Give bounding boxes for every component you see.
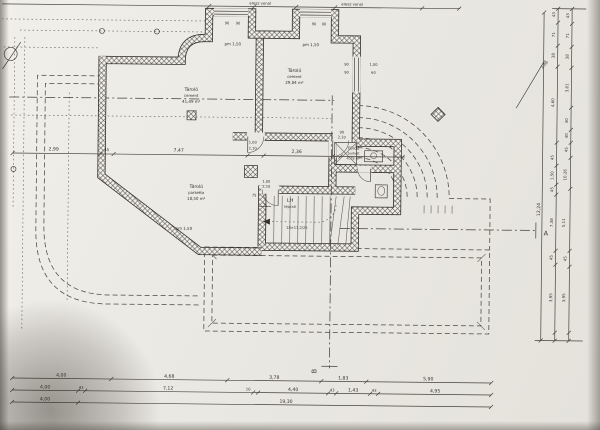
wall-pillar [186,111,258,178]
dim-b2-7: 1,43 [348,388,358,394]
dim-b2-2: 43 [79,385,84,390]
room1-area: 41,49 m² [182,99,201,104]
room3-area: 18,50 m² [187,196,206,201]
dim-r2-1: 43 [565,13,570,19]
dim-bottom-rows [10,376,493,409]
window-dim-c: 1,00 [370,63,379,67]
dim-r2-5: 30 [564,118,569,124]
dim-b2-8: 43 [372,388,377,393]
dim-r2-7: 45 [564,147,569,153]
dim-r2-2: 71 [565,33,570,39]
staircase [259,196,351,246]
dim-r1-2: 71 [551,32,556,38]
north-marker [3,42,21,69]
dim-b2-3: 7,12 [163,386,173,392]
dim-oblique: 2,86 [540,59,550,69]
floorplan-photo: eresz vonaleresz vonal90909090pm 1,50pm … [0,0,600,430]
wall-parapet: pm 1,50 [176,226,193,231]
bath-area: 4,79 m² [347,156,362,160]
survey-marks [1,27,159,173]
dim-r1-8: 7,38 [549,218,554,227]
dim-b1-2: 4,68 [164,374,174,380]
bay-window-2 [300,9,331,17]
room1-finish: cement [184,93,199,98]
dim-r2-8: 10,26 [562,169,567,181]
window-dim-b: 90 [344,70,349,74]
door3-width: 90 [340,130,345,134]
section-a-label: A [544,230,549,238]
door2-height: 2,10 [262,185,271,189]
room3-finish: parketta [188,190,204,195]
dim-b2-5: 4,40 [288,387,298,393]
dim-b2-4: 10 [246,386,251,391]
bay1-dim-a: 90 [225,21,230,25]
stair-sub: lépcső [284,205,296,209]
note-eresz-1: eresz vonal [249,0,271,5]
stair-name: LH [287,198,294,204]
dim-b2-9: 4,95 [430,388,440,394]
dim-mid-1: 2,99 [49,146,59,152]
dim-r2-6: 40 [564,133,569,139]
bay2-dim-b: 90 [322,22,327,26]
room2-finish: cement [287,74,302,79]
walls [101,7,400,253]
bath-name: Fürdő [348,146,360,151]
dim-r2-10: 45 [563,256,568,262]
door2-width: 1,00 [262,180,271,184]
dim-b2-1: 4,00 [40,384,50,390]
dim-b1-4: 1,83 [338,375,348,381]
dim-r2-11: 3,95 [561,293,566,302]
washbasin [365,151,383,162]
dim-b1-1: 4,00 [56,372,66,378]
side-window [352,57,360,93]
bay1-parapet: pm 1,50 [224,41,241,46]
dim-b1-3: 3,78 [269,375,279,381]
dim-r2-9: 5,11 [561,218,566,227]
dim-r1-7: 45 [549,187,554,193]
dim-b3-1: 4,00 [40,396,50,402]
door1-height: 2,10 [249,146,258,150]
toilet [375,185,387,198]
dim-r1-10: 3,95 [548,293,553,302]
room2-area: 29,84 m² [285,80,304,85]
dim-b1-5: 5,90 [423,376,433,382]
note-eresz-2: eresz vonal [341,1,363,6]
bay2-dim-a: 90 [312,22,317,26]
window-dim-a: 90 [344,62,349,66]
bay2-parapet: pm 1,50 [302,42,319,47]
bay-window-1 [214,8,248,16]
dim-mid-4: 2,36 [292,149,302,155]
dim-b3-2: 19,30 [279,399,292,405]
dim-r1-6: 1,50 [549,171,554,180]
bath-finish: burkolt [348,151,361,155]
dim-r1-9: 45 [549,255,554,261]
dimension-chains [8,1,586,410]
section-b-label: B [310,369,318,374]
dim-b2-6: 43 [330,387,335,392]
stair-dim: 75 [252,193,257,197]
stair-note: 18×17,2/25 [286,226,307,230]
dim-r2-4: 3,61 [564,83,569,92]
floorplan-drawing: eresz vonaleresz vonal90909090pm 1,50pm … [0,0,600,430]
door-wc [357,166,371,182]
dim-mid-3: 7,47 [174,148,184,154]
dim-r1-5: 45 [550,155,555,161]
dim-mid-line [11,151,405,159]
window-dim-d: 60 [371,71,376,75]
dim-mid-2: 45 [104,147,110,152]
dim-r1-1: 43 [551,12,556,18]
bay1-dim-b: 90 [236,21,241,25]
dim-r1-3: 38 [551,53,556,59]
door3-height: 2,10 [338,135,347,139]
garden-pillar [431,107,445,121]
dim-r2-3: 38 [565,54,570,60]
exterior-stairs [357,106,453,214]
dim-r-total: 12,24 [536,203,542,216]
dim-r1-4: 4,60 [550,98,555,107]
door1-width: 1,00 [249,140,258,144]
